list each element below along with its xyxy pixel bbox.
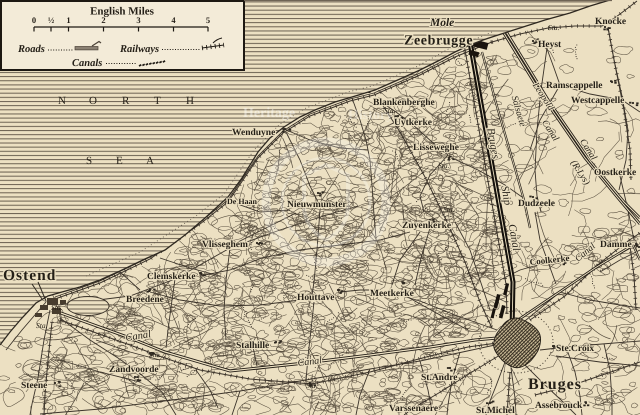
svg-text:Wenduyne: Wenduyne: [232, 128, 275, 138]
svg-text:Stalhille: Stalhille: [236, 341, 269, 351]
svg-text:Meetkerke: Meetkerke: [370, 289, 414, 299]
svg-text:St.Michel: St.Michel: [476, 406, 515, 415]
svg-text:Bruges: Bruges: [528, 376, 582, 393]
svg-text:Steene: Steene: [21, 381, 47, 391]
svg-text:Nieuwmunster: Nieuwmunster: [287, 200, 347, 210]
svg-text:Railways: Railways: [119, 44, 159, 55]
svg-text:Sta.: Sta.: [36, 321, 48, 330]
svg-text:Clemskerke: Clemskerke: [147, 272, 196, 282]
svg-text:Sta.: Sta.: [548, 23, 560, 32]
svg-text:Zeebrugge: Zeebrugge: [404, 34, 473, 49]
svg-text:Zuyenkerke: Zuyenkerke: [402, 221, 451, 231]
svg-text:Uytkerke: Uytkerke: [394, 118, 432, 128]
svg-text:Varssenaere: Varssenaere: [389, 404, 438, 414]
svg-text:Knocke: Knocke: [595, 17, 626, 27]
svg-text:2: 2: [101, 15, 105, 25]
svg-text:Sta.: Sta.: [438, 161, 450, 170]
svg-text:Zandvoorde: Zandvoorde: [109, 365, 159, 375]
svg-text:Heritage: Heritage: [243, 106, 295, 121]
svg-text:Ramscappelle: Ramscappelle: [546, 81, 602, 91]
svg-text:De Haan: De Haan: [227, 197, 258, 206]
svg-text:Assebrouck: Assebrouck: [535, 401, 583, 411]
svg-text:Sta.: Sta.: [306, 381, 318, 390]
svg-text:Sta.: Sta.: [443, 205, 455, 214]
svg-text:Vlisseghem: Vlisseghem: [202, 240, 248, 250]
svg-text:3: 3: [136, 15, 140, 25]
svg-text:5: 5: [206, 15, 210, 25]
svg-text:Sta.: Sta.: [149, 350, 161, 359]
svg-text:Sta.: Sta.: [51, 303, 63, 312]
svg-text:Ostend: Ostend: [3, 267, 56, 284]
svg-text:Sta.: Sta.: [384, 106, 396, 115]
svg-text:Dudzeele: Dudzeele: [518, 199, 555, 209]
svg-text:Oostkerke: Oostkerke: [594, 168, 636, 178]
svg-text:N: N: [58, 95, 66, 107]
svg-text:Mole: Mole: [429, 17, 454, 29]
svg-text:1: 1: [66, 15, 70, 25]
svg-text:Westcappelle: Westcappelle: [571, 96, 624, 106]
svg-text:R: R: [122, 95, 130, 107]
svg-text:0: 0: [32, 15, 36, 25]
svg-text:T: T: [154, 95, 161, 107]
svg-text:Heyst: Heyst: [538, 40, 562, 50]
svg-text:E: E: [116, 155, 123, 167]
svg-text:½: ½: [48, 15, 55, 25]
svg-text:Damme: Damme: [600, 240, 632, 250]
svg-text:S: S: [86, 155, 92, 167]
svg-text:English Miles: English Miles: [90, 6, 155, 18]
svg-text:O: O: [89, 95, 97, 107]
svg-text:Canals: Canals: [72, 58, 102, 69]
svg-text:A: A: [146, 155, 154, 167]
svg-text:St.Andre: St.Andre: [421, 373, 458, 383]
svg-text:Houttave: Houttave: [297, 293, 334, 303]
svg-text:Blankenberghe: Blankenberghe: [373, 98, 435, 108]
svg-text:Lisseweghe: Lisseweghe: [413, 143, 459, 153]
svg-text:Ste.Croix: Ste.Croix: [556, 344, 594, 354]
svg-text:H: H: [186, 95, 194, 107]
svg-text:Roads: Roads: [17, 44, 45, 55]
svg-text:Breedene: Breedene: [126, 295, 164, 305]
